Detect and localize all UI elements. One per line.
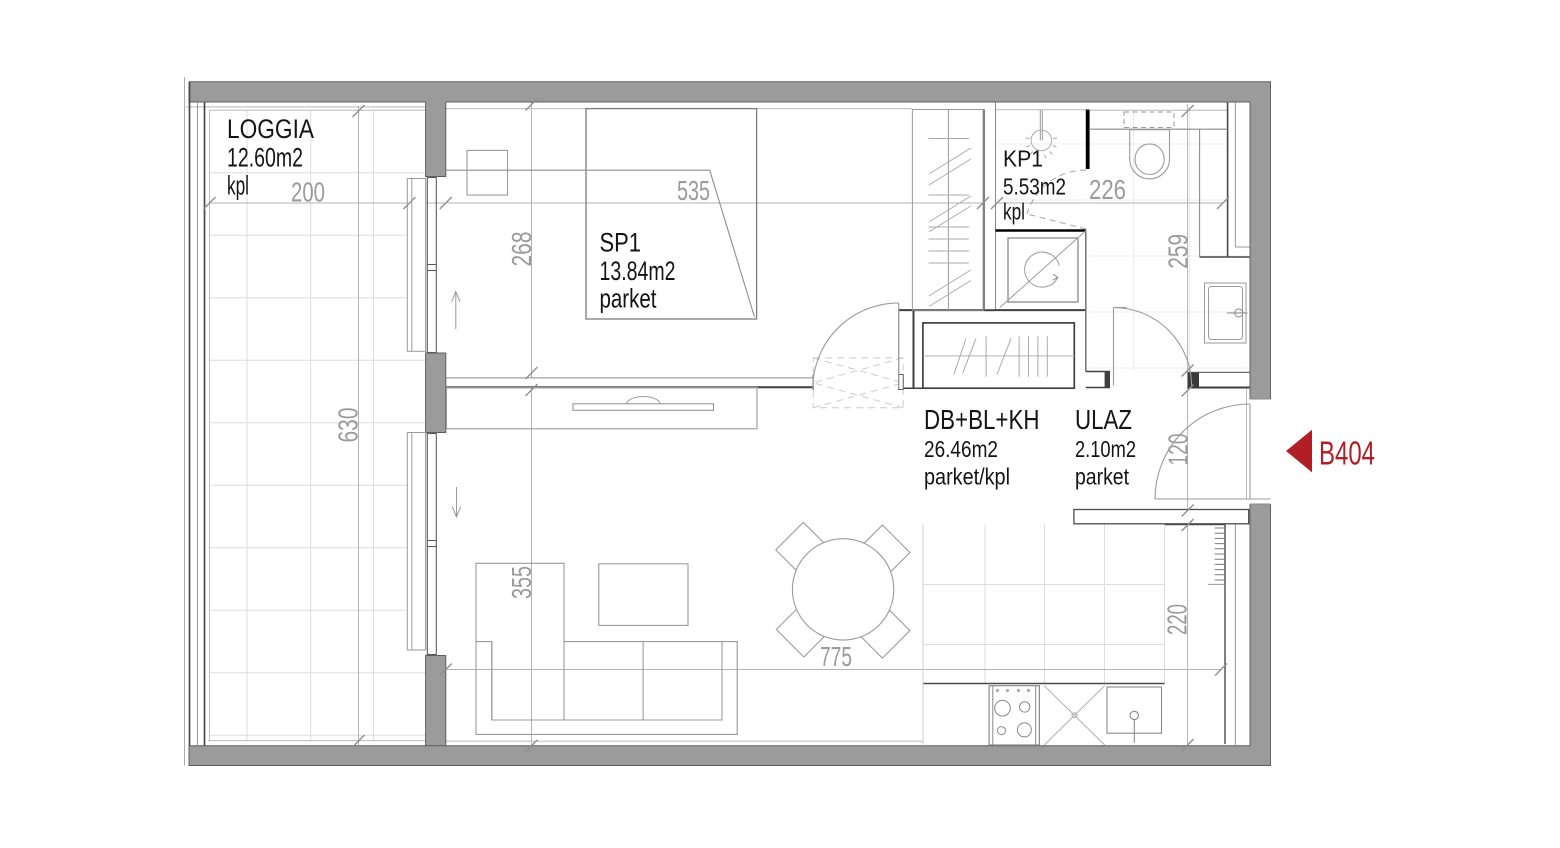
svg-text:259: 259 xyxy=(1162,234,1193,269)
svg-text:775: 775 xyxy=(820,641,852,672)
svg-text:12.60m2: 12.60m2 xyxy=(227,142,303,172)
svg-text:kpl: kpl xyxy=(227,171,249,201)
svg-text:DB+BL+KH: DB+BL+KH xyxy=(924,404,1040,435)
svg-text:26.46m2: 26.46m2 xyxy=(924,436,998,462)
svg-text:630: 630 xyxy=(333,408,364,443)
svg-text:226: 226 xyxy=(1089,174,1126,205)
svg-text:120: 120 xyxy=(1162,434,1193,466)
svg-text:268: 268 xyxy=(506,232,537,267)
svg-text:2.10m2: 2.10m2 xyxy=(1075,436,1136,462)
svg-text:5.53m2: 5.53m2 xyxy=(1003,174,1066,200)
svg-text:220: 220 xyxy=(1161,604,1192,635)
svg-text:ULAZ: ULAZ xyxy=(1075,404,1132,435)
svg-text:LOGGIA: LOGGIA xyxy=(227,114,314,144)
svg-text:SP1: SP1 xyxy=(600,228,642,258)
svg-text:535: 535 xyxy=(677,175,710,206)
svg-text:parket: parket xyxy=(600,284,657,314)
svg-text:B404: B404 xyxy=(1319,435,1375,472)
svg-text:parket/kpl: parket/kpl xyxy=(924,464,1010,490)
svg-text:parket: parket xyxy=(1075,464,1130,490)
svg-text:13.84m2: 13.84m2 xyxy=(600,256,676,286)
svg-text:200: 200 xyxy=(291,177,325,208)
svg-text:355: 355 xyxy=(506,566,537,599)
svg-text:kpl: kpl xyxy=(1003,199,1025,225)
svg-text:KP1: KP1 xyxy=(1003,146,1043,172)
